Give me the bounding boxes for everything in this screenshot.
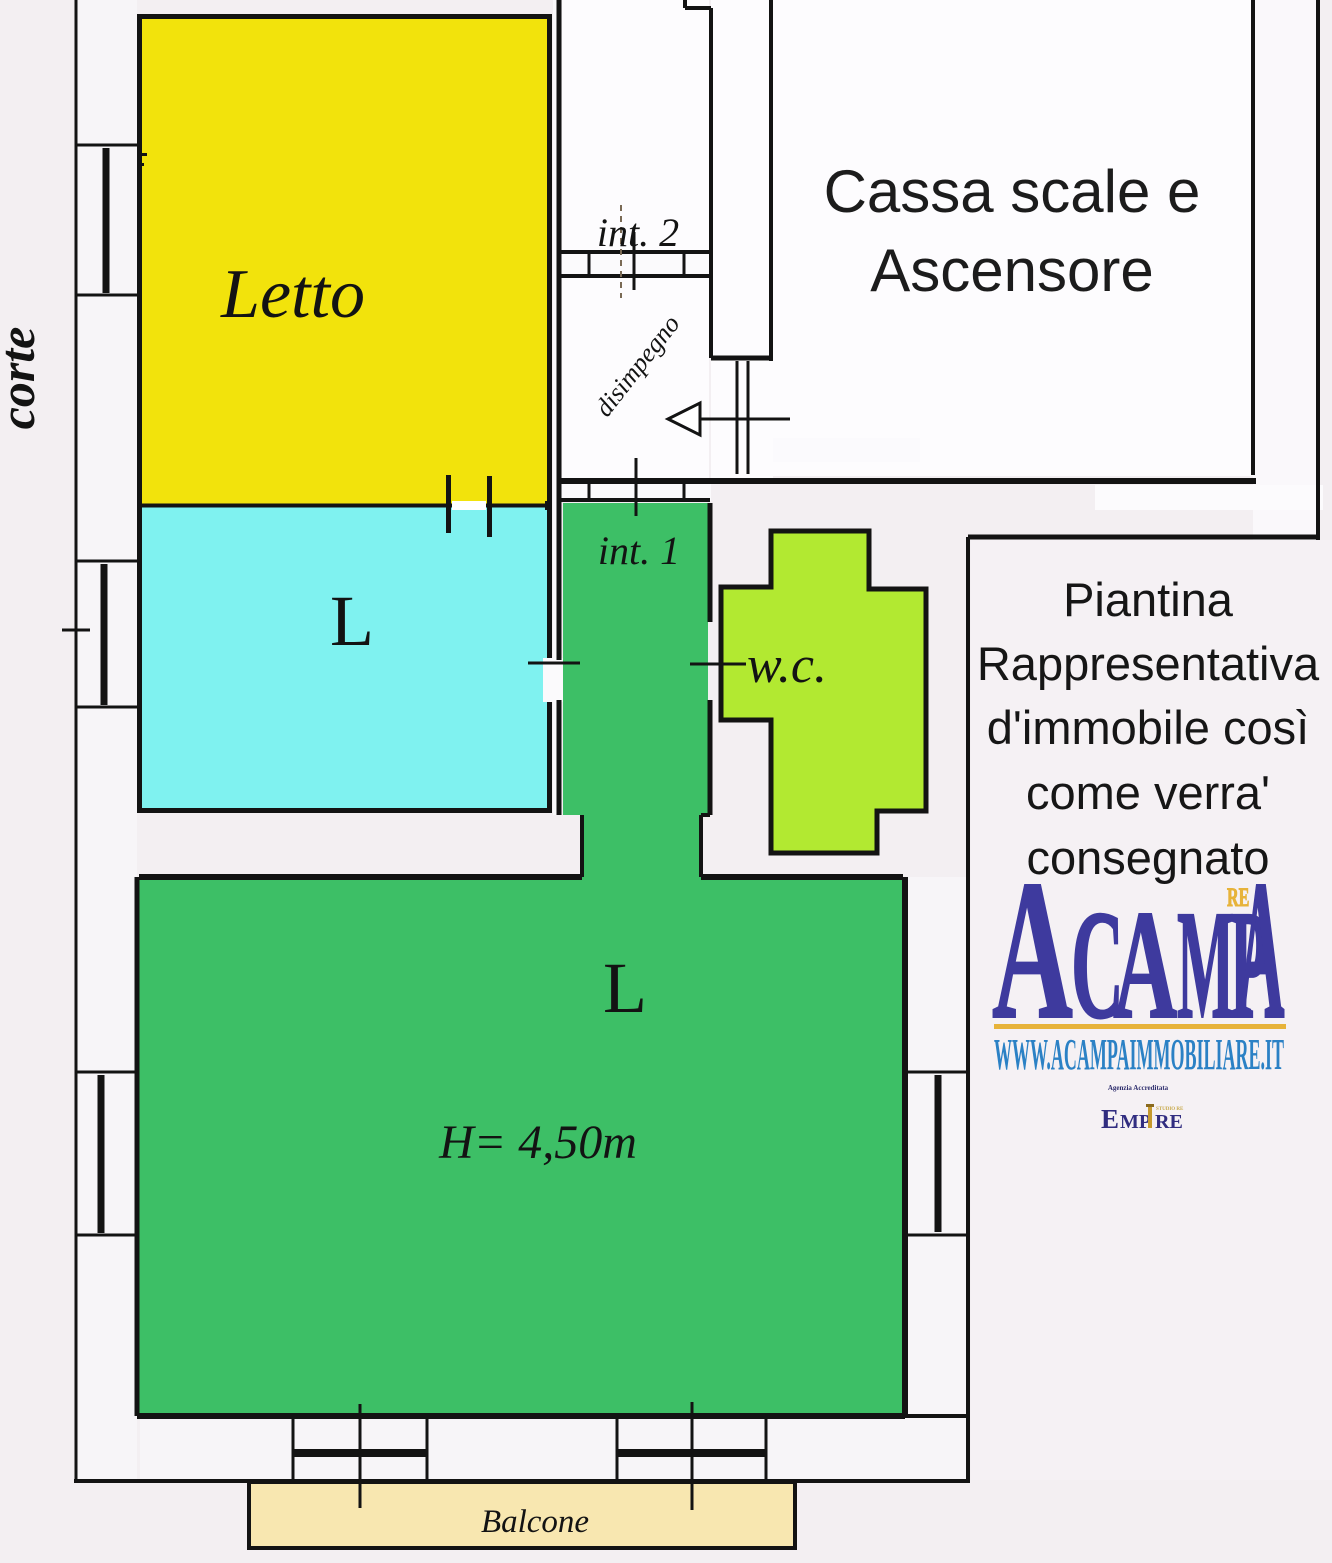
svg-text:Letto: Letto — [220, 256, 365, 333]
svg-text:WWW.ACAMPAIMMOBILIARE.IT: WWW.ACAMPAIMMOBILIARE.IT — [994, 1030, 1284, 1079]
svg-text:Ascensore: Ascensore — [870, 237, 1153, 304]
svg-text:w.c.: w.c. — [747, 637, 827, 694]
svg-text:Balcone: Balcone — [481, 1504, 589, 1540]
svg-text:int. 2: int. 2 — [597, 210, 679, 255]
svg-text:Cassa scale e: Cassa scale e — [824, 158, 1201, 225]
svg-text:come verra': come verra' — [1026, 766, 1270, 819]
svg-text:E: E — [1101, 1104, 1119, 1134]
svg-text:Rappresentativa: Rappresentativa — [977, 637, 1320, 690]
svg-text:MP: MP — [1120, 1111, 1151, 1133]
svg-text:d'immobile così: d'immobile così — [987, 701, 1309, 754]
svg-text:L: L — [330, 581, 374, 661]
svg-text:int. 1: int. 1 — [598, 528, 680, 573]
svg-text:corte: corte — [0, 327, 45, 430]
svg-text:Agenzia Accreditata: Agenzia Accreditata — [1108, 1084, 1169, 1092]
svg-text:RE: RE — [1227, 883, 1249, 912]
svg-text:RE: RE — [1155, 1111, 1183, 1133]
svg-text:L: L — [603, 948, 647, 1028]
svg-text:Piantina: Piantina — [1063, 573, 1234, 626]
svg-text:STUDIO RE: STUDIO RE — [1156, 1107, 1184, 1112]
svg-text:H= 4,50m: H= 4,50m — [438, 1116, 637, 1169]
